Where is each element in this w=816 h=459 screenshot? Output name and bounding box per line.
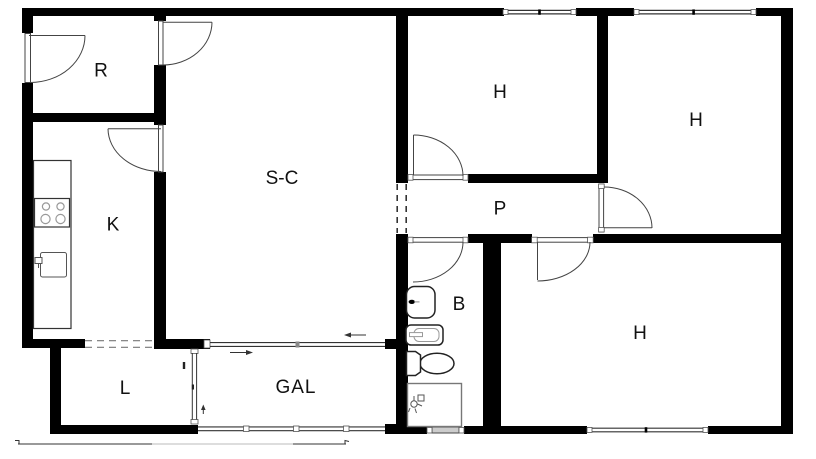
svg-text:GAL: GAL: [275, 377, 316, 398]
svg-text:R: R: [94, 61, 108, 82]
svg-text:S-C: S-C: [266, 168, 299, 189]
svg-text:H: H: [633, 323, 647, 344]
svg-text:K: K: [107, 215, 120, 236]
svg-text:H: H: [493, 82, 507, 103]
svg-text:L: L: [120, 378, 131, 399]
svg-text:P: P: [494, 199, 507, 220]
svg-text:B: B: [453, 294, 466, 315]
svg-text:H: H: [689, 110, 703, 131]
